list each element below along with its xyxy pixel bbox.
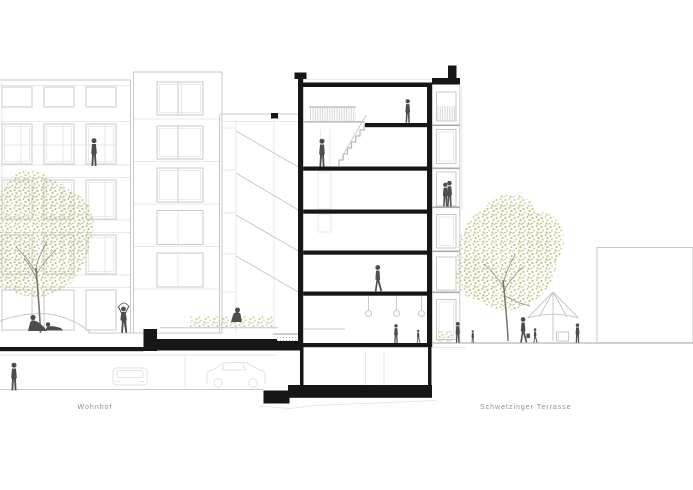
shrub [438, 331, 453, 343]
person-topfloor-icon [405, 99, 410, 123]
person-groundfloor-child-icon [417, 330, 421, 343]
cut-wall-right [427, 85, 432, 348]
parapet-right [448, 66, 457, 80]
person-terrace-kid-icon [533, 328, 537, 342]
closet-f2 [318, 172, 331, 209]
car-front-icon [113, 368, 147, 385]
person-walking-floor1-icon [375, 265, 382, 291]
gallery-slab-cap [271, 113, 278, 119]
garage-column [144, 329, 158, 351]
void-railing [309, 107, 356, 122]
closet-f1 [318, 215, 331, 233]
bay-balcony-railing [438, 106, 456, 121]
shopping-bag [527, 334, 530, 339]
terrace-table [557, 332, 569, 341]
car-side-icon [207, 363, 265, 388]
facade-wing [134, 72, 223, 333]
label-schwetzinger-terrasse: Schwetzinger Terrasse [480, 404, 572, 411]
roof-slab [298, 83, 432, 88]
slab-f2 [303, 210, 427, 214]
parapet-left [295, 73, 307, 80]
architectural-section-drawing: Wohnhof Schwetzinger Terrasse [0, 0, 693, 490]
right-building-outline [597, 248, 693, 343]
cut-wall-left [298, 79, 303, 347]
foundation-slab [288, 385, 432, 398]
garage-roof-slab-court [157, 339, 277, 351]
pendant-lamps [366, 297, 425, 317]
stair [339, 124, 364, 166]
ground-slab [300, 343, 432, 347]
person-groundfloor-adult-icon [394, 324, 398, 343]
street-facade-bay [432, 85, 462, 343]
bay-roof-band [432, 78, 460, 85]
garage-roof-slab-left [0, 347, 144, 351]
section-building [259, 66, 466, 409]
slab-f1 [303, 251, 427, 255]
foundation-step [264, 391, 290, 404]
person-terrace-child-icon [471, 330, 474, 343]
access-gallery [220, 113, 301, 333]
basement-wall-right [428, 347, 432, 386]
person-garage-icon [11, 363, 17, 391]
underground-garage [0, 355, 277, 390]
person-terrace-woman-icon [520, 317, 527, 342]
person-floor3-icon [319, 139, 325, 167]
basement-wall-left [300, 347, 304, 386]
person-terrace-man-icon [576, 323, 580, 342]
person-crouching-icon [231, 308, 242, 323]
gallery-stairs [236, 131, 300, 293]
slab-f3 [303, 167, 427, 171]
slab-f4 [365, 123, 427, 127]
label-wohnhof: Wohnhof [60, 404, 130, 411]
section-canvas [0, 0, 693, 490]
person-skipping-icon [118, 303, 130, 333]
slab-f0 [303, 292, 427, 296]
cut-structure [259, 66, 466, 409]
right-tree [456, 194, 564, 341]
